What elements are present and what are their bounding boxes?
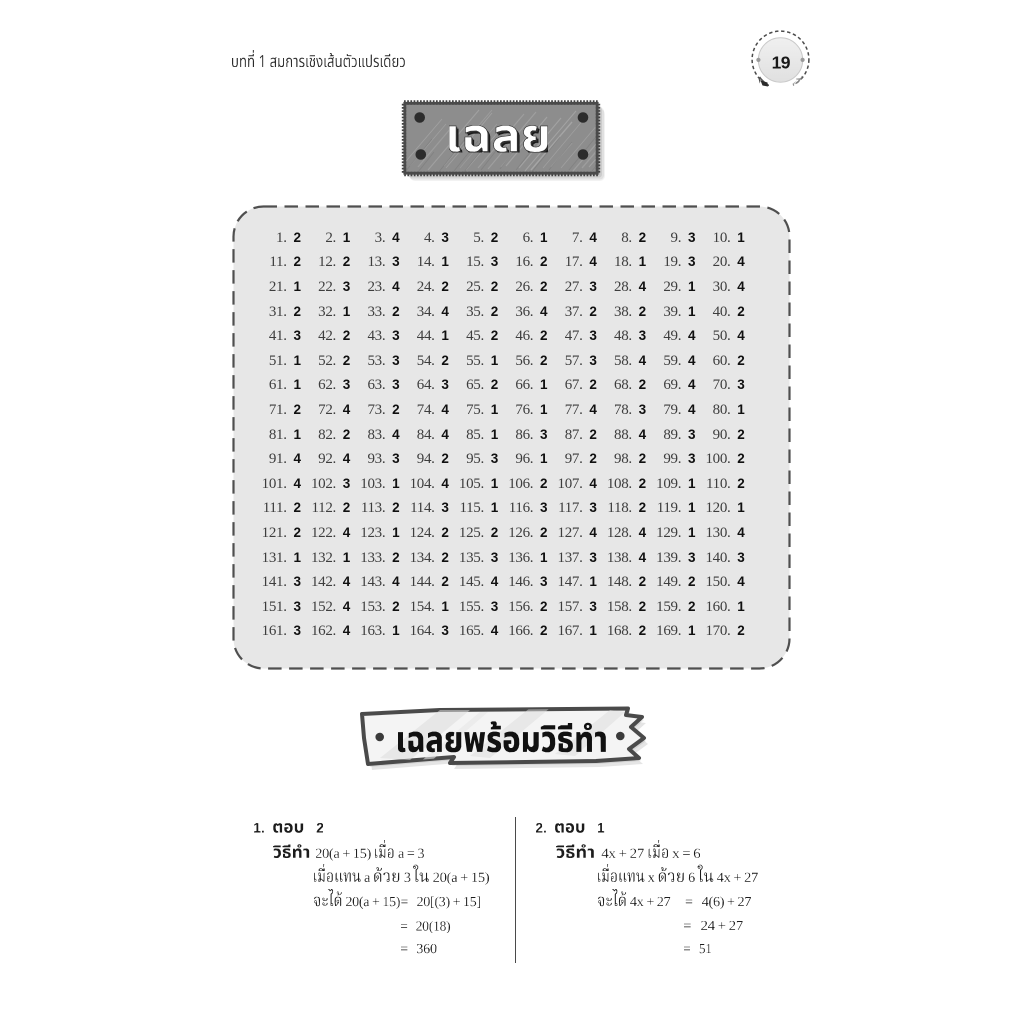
svg-text:19: 19 [772,53,791,73]
